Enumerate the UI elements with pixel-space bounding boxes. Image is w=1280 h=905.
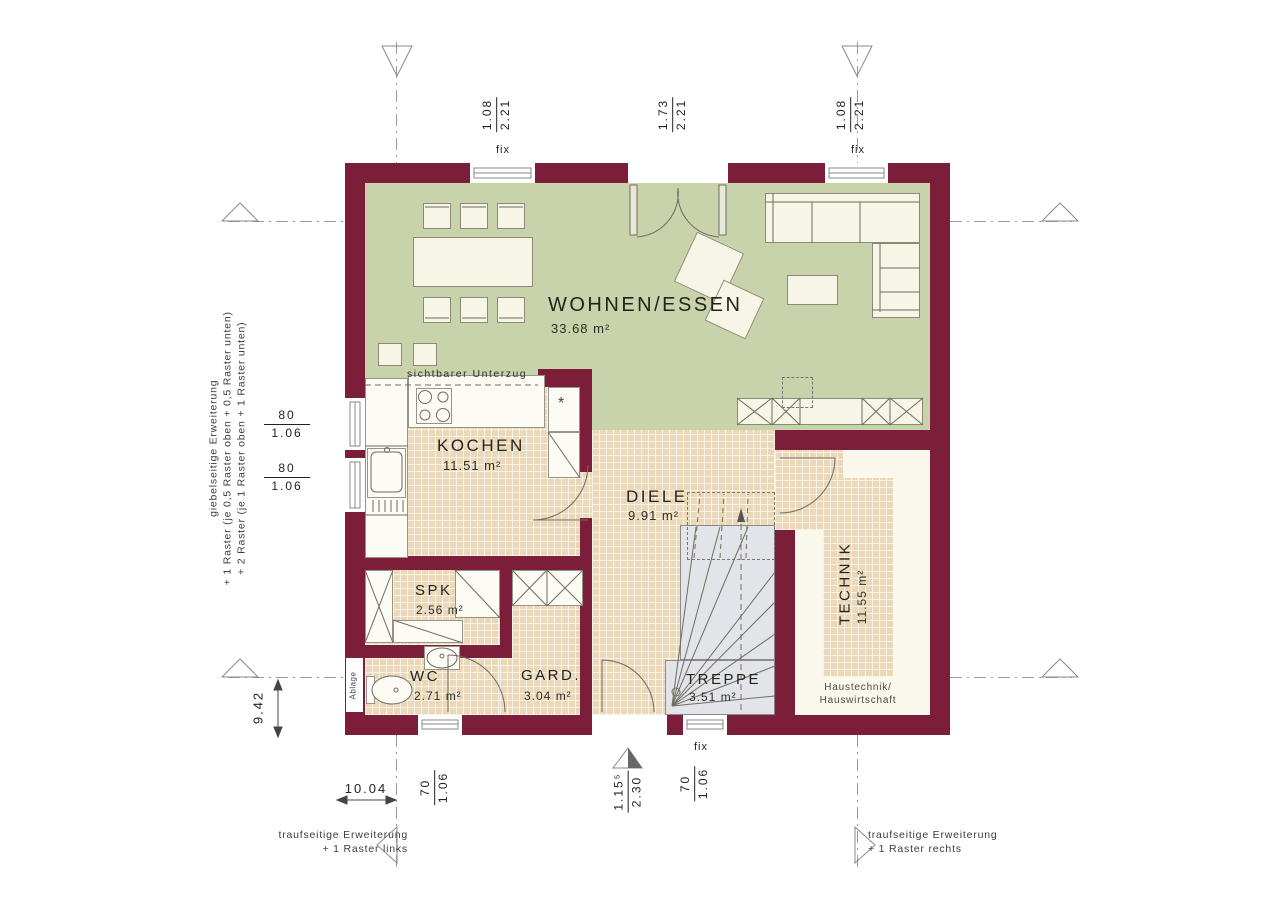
note-line: + 1 Raster rechts	[868, 842, 1038, 856]
floor-plan: WOHNEN/ESSEN 33.68 m² KOCHEN 11.51 m² DI…	[0, 0, 1280, 905]
dimension-value: 1.06	[435, 770, 451, 805]
room-label-technik: TECHNIK	[837, 524, 854, 644]
room-label-treppe: TREPPE	[686, 671, 761, 688]
dimension-value: 2.21	[673, 97, 689, 132]
tv-dashed-outline	[782, 377, 813, 408]
fix-label-bottom: fix	[686, 741, 716, 753]
area-label-wohnen: 33.68 m²	[551, 321, 610, 336]
dimension-value: 80	[264, 408, 310, 425]
sofa-horizontal	[765, 193, 920, 243]
dimension-entrance-door: 1.15⁵ 2.30	[612, 770, 645, 812]
room-label-wohnen: WOHNEN/ESSEN	[548, 294, 742, 317]
coffee-table	[787, 275, 838, 305]
note-line: + 1 Raster links	[252, 842, 408, 856]
dimension-left-upper-window: 80 1.06	[264, 408, 310, 441]
area-label-spk: 2.56 m²	[416, 603, 464, 617]
area-label-diele: 9.91 m²	[628, 508, 679, 523]
room-label-kochen: KOCHEN	[437, 436, 525, 456]
beam-label: sichtbarer Unterzug	[407, 368, 527, 380]
cabinet	[413, 343, 437, 366]
dimension-value: 70	[418, 770, 435, 805]
dimension-top-right-window: 1.08 2.21	[834, 97, 867, 132]
dining-chair	[497, 203, 525, 229]
room-label-diele: DIELE	[626, 487, 688, 507]
dining-chair	[423, 203, 451, 229]
dimension-bottom-wc-window: 70 1.06	[418, 770, 451, 805]
dining-chair	[460, 203, 488, 229]
note-traufseitige-links: traufseitige Erweiterung + 1 Raster link…	[252, 828, 408, 856]
grid-line-vertical-left-top	[396, 42, 397, 163]
window-bottom-wc	[418, 715, 462, 735]
wall-kitchen-spk-left	[365, 556, 392, 570]
dimension-value: 1.06	[264, 425, 310, 441]
dining-chair	[460, 297, 488, 323]
note-line: + 1 Raster (je 0,5 Raster oben + 0,5 Ras…	[221, 298, 235, 598]
spk-shelf-bottom	[393, 620, 463, 643]
dimension-value: 1.08	[480, 97, 497, 132]
dimension-left-lower-window: 80 1.06	[264, 461, 310, 494]
area-label-kochen: 11.51 m²	[443, 458, 501, 473]
note-line: traufseitige Erweiterung	[868, 828, 1038, 842]
spk-shelf-left	[365, 570, 393, 643]
wc-door-passage	[500, 658, 512, 715]
dimension-value: 2.21	[497, 97, 513, 132]
wardrobe	[512, 570, 583, 606]
dining-chair	[423, 297, 451, 323]
entrance-door-opening	[592, 715, 667, 735]
area-label-treppe: 3.51 m²	[689, 690, 737, 704]
dimension-value: 1.08	[834, 97, 851, 132]
window-left-upper	[345, 398, 365, 450]
technik-door-passage	[775, 450, 795, 530]
dimension-total-height: 9.42	[251, 678, 266, 738]
dimension-bottom-fix-window: 70 1.06	[678, 766, 711, 801]
stove	[416, 388, 452, 424]
dimension-value: 2.21	[851, 97, 867, 132]
dimension-top-left-window: 1.08 2.21	[480, 97, 513, 132]
wall-wc-gard	[500, 556, 512, 658]
note-line: giebelseitige Erweiterung	[207, 298, 221, 598]
area-label-gard: 3.04 m²	[524, 689, 572, 703]
note-line: traufseitige Erweiterung	[252, 828, 408, 842]
dimension-total-width: 10.04	[336, 781, 396, 796]
sideboard	[737, 398, 923, 425]
wall-kitchen-diele-upper	[580, 387, 592, 472]
room-label-spk: SPK	[415, 582, 453, 599]
dimension-value: 1.73	[656, 97, 673, 132]
toilet-tank	[366, 676, 375, 704]
wc-sink	[424, 646, 460, 670]
ablage-label: Ablage	[349, 663, 358, 709]
wall-kitchen-spk-right	[412, 556, 580, 570]
sofa-vertical	[872, 243, 920, 318]
dining-table	[413, 237, 533, 287]
fix-label-top-right: fix	[843, 144, 873, 156]
dimension-value: 80	[264, 461, 310, 478]
fix-label-top-left: fix	[488, 144, 518, 156]
window-bottom-fix	[683, 715, 727, 735]
grid-line-horizontal-upper-left	[228, 221, 345, 222]
grid-line-horizontal-lower-right	[950, 677, 1072, 678]
wall-diele-technik	[775, 530, 795, 715]
room-label-gard: GARD.	[521, 667, 581, 684]
note-line: + 2 Raster (je 1 Raster oben + 1 Raster …	[235, 298, 249, 598]
cabinet	[378, 343, 402, 366]
room-label-wc: WC	[410, 668, 440, 685]
area-label-technik: 11.55 m²	[855, 557, 869, 637]
dimension-value: 1.06	[264, 478, 310, 494]
haustechnik-label-line1: Haustechnik/	[810, 682, 906, 693]
area-label-wc: 2.71 m²	[414, 689, 462, 703]
dimension-value: 1.06	[695, 766, 711, 801]
dimension-value: 1.15⁵	[612, 770, 629, 812]
terrace-door-opening	[628, 163, 728, 183]
kitchen-cabinet-star-symbol: *	[558, 395, 564, 413]
stair-projection-dashed	[687, 492, 775, 560]
note-traufseitige-rechts: traufseitige Erweiterung + 1 Raster rech…	[868, 828, 1038, 856]
window-top-left	[470, 163, 535, 183]
grid-line-vertical-right-bottom	[857, 735, 858, 870]
window-top-right	[825, 163, 888, 183]
wall-gard-entrance	[580, 640, 592, 715]
dimension-value: 2.30	[629, 770, 645, 812]
wall-kitchen-living	[538, 369, 592, 387]
note-giebelseitige-erweiterung: giebelseitige Erweiterung + 1 Raster (je…	[207, 298, 250, 598]
grid-line-horizontal-lower-left	[228, 677, 345, 678]
haustechnik-label-line2: Hauswirtschaft	[810, 695, 906, 706]
wall-living-technik	[775, 430, 930, 450]
dimension-top-terrace-door: 1.73 2.21	[656, 97, 689, 132]
entrance-marker	[628, 748, 642, 768]
dishwasher	[548, 432, 580, 478]
dining-chair	[497, 297, 525, 323]
window-left-lower	[345, 458, 365, 512]
grid-line-horizontal-upper-right	[950, 221, 1072, 222]
dimension-value: 70	[678, 766, 695, 801]
kitchen-sink-unit	[367, 448, 406, 498]
